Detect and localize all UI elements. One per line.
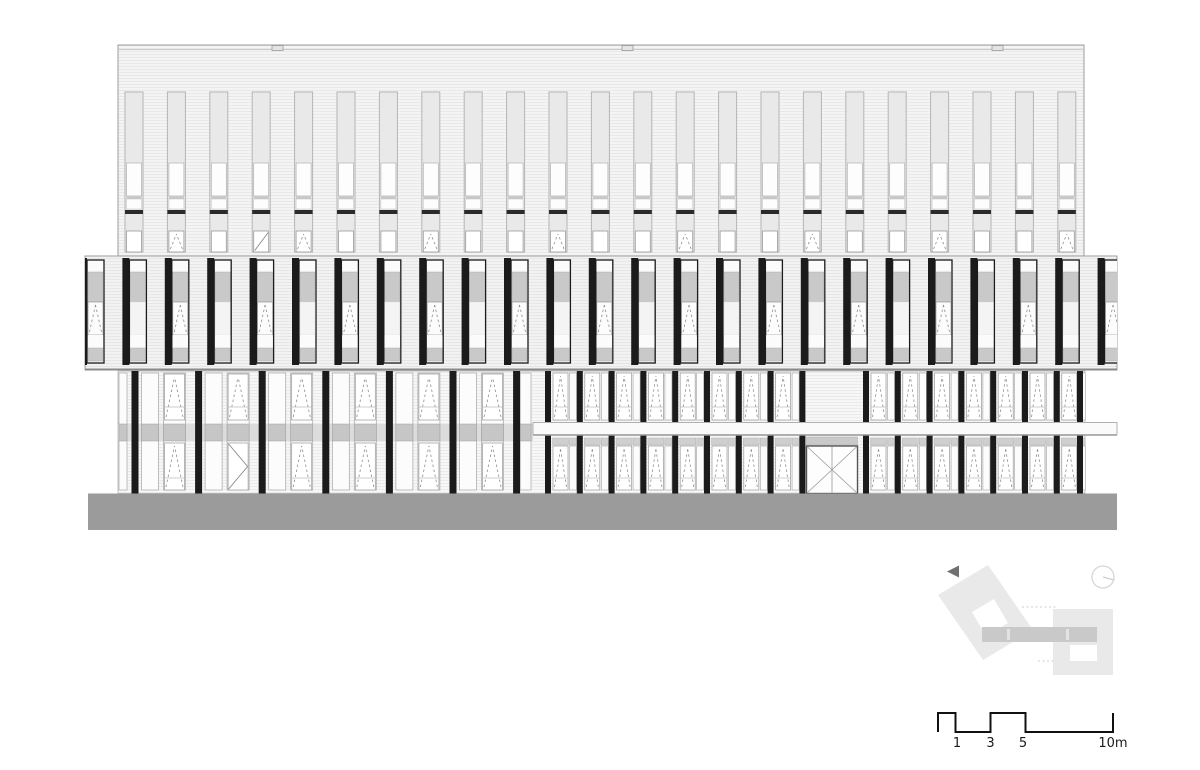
window-pane: [998, 373, 1013, 420]
floor-slab-line: [634, 210, 652, 214]
spandrel: [766, 272, 781, 302]
window-pane: [483, 443, 503, 490]
window-recess: [763, 214, 778, 231]
sill-panel: [766, 348, 781, 361]
floor-slab-line: [931, 210, 949, 214]
window-pane: [724, 261, 739, 272]
window-pane: [553, 373, 568, 420]
upper-window-strip: [422, 92, 440, 252]
window-pane: [385, 261, 400, 272]
mullion: [322, 371, 329, 494]
transom-panel: [998, 438, 1014, 445]
window-pane: [936, 261, 951, 272]
window-pane: [512, 261, 527, 272]
spandrel: [164, 424, 186, 441]
window-pane: [744, 446, 759, 490]
window-pane: [935, 446, 950, 490]
floor-slab-line: [761, 210, 779, 214]
upper-window-strip: [167, 92, 185, 252]
window-pane: [851, 335, 866, 348]
upper-window-strip: [210, 92, 228, 252]
window-pane: [211, 163, 226, 196]
sill-panel: [809, 348, 824, 361]
spandrel: [1063, 272, 1078, 302]
band-window-unit: [758, 258, 782, 365]
spandrel-column: [951, 446, 958, 490]
window-pane: [847, 199, 862, 209]
band-window-unit: [674, 258, 698, 365]
window-pane: [553, 446, 568, 490]
transom-panel: [1015, 438, 1022, 445]
transom-panel: [902, 438, 918, 445]
window-pane: [847, 163, 862, 196]
window-pane: [551, 199, 566, 209]
transom-panel: [648, 438, 664, 445]
band-window-unit: [801, 258, 825, 365]
ground-strip: [88, 494, 1117, 531]
window-pane: [300, 261, 315, 272]
sill-panel: [385, 348, 400, 361]
spandrel: [119, 424, 127, 441]
sill-panel: [936, 348, 951, 361]
window-recess: [508, 214, 523, 231]
window-pane: [512, 335, 527, 348]
mullion: [250, 258, 257, 365]
spandrel-column: [951, 373, 958, 420]
transom-panel: [697, 438, 704, 445]
mullion: [758, 258, 765, 365]
spandrel: [763, 196, 778, 199]
mullion: [1055, 258, 1062, 365]
spandrel: [682, 272, 697, 302]
entrance-door: [807, 437, 858, 494]
sill-panel: [342, 348, 357, 361]
window-recess: [211, 214, 226, 231]
spandrel: [932, 196, 947, 199]
band-window-unit: [716, 258, 740, 365]
window-pane: [585, 373, 600, 420]
window-pane: [635, 199, 650, 209]
spandrel: [466, 196, 481, 199]
transom-panel: [553, 438, 569, 445]
spandrel-column: [1015, 446, 1022, 490]
window-pane: [1017, 199, 1032, 209]
spandrel: [339, 196, 354, 199]
mullion: [513, 371, 520, 494]
spandrel: [88, 272, 103, 302]
band-window-unit: [546, 258, 570, 365]
window-pane: [890, 231, 905, 252]
window-pane: [593, 231, 608, 252]
floor-slab-line: [803, 210, 821, 214]
mullion: [631, 258, 638, 365]
window-pane: [635, 231, 650, 252]
window-pane: [130, 261, 145, 272]
window-pane: [763, 199, 778, 209]
spandrel: [597, 272, 612, 302]
band-window-unit: [122, 258, 146, 365]
spandrel: [130, 272, 145, 302]
window-pane: [300, 335, 315, 348]
band-window-unit: [1098, 258, 1122, 365]
upper-window-strip: [295, 92, 313, 252]
upper-window-strip: [464, 92, 482, 252]
window-pane: [1030, 373, 1045, 420]
window-pane: [165, 443, 185, 490]
spandrel-column: [729, 373, 736, 420]
lower-level: [118, 371, 1117, 494]
window-pane: [173, 261, 188, 272]
spandrel: [258, 272, 273, 302]
window-pane: [508, 199, 523, 209]
window-pane: [932, 163, 947, 196]
window-pane: [470, 335, 485, 348]
window-recess: [296, 214, 311, 231]
window-pane: [1017, 163, 1032, 196]
window-pane: [597, 261, 612, 272]
window-pane: [551, 163, 566, 196]
window-pane: [809, 261, 824, 272]
window-pane: [300, 302, 315, 335]
transom-panel: [871, 438, 887, 445]
floor-slab-line: [337, 210, 355, 214]
window-pane: [254, 199, 269, 209]
mullion: [970, 258, 977, 365]
spandrel: [173, 272, 188, 302]
transom-panel: [616, 438, 632, 445]
ground-line: [88, 494, 1117, 531]
window-pane: [978, 302, 993, 335]
sill-panel: [597, 348, 612, 361]
spandrel: [975, 196, 990, 199]
band-window-unit: [207, 258, 231, 365]
window-pane: [466, 199, 481, 209]
spandrel-column: [760, 373, 767, 420]
floor-slab-line: [591, 210, 609, 214]
mullion: [928, 258, 935, 365]
window-recess: [635, 214, 650, 231]
spandrel: [635, 196, 650, 199]
window-pane: [427, 261, 442, 272]
spandrel-column: [729, 446, 736, 490]
lower-window-column: [227, 373, 249, 490]
floor-slab-line: [676, 210, 694, 214]
window-recess: [466, 214, 481, 231]
window-pane: [1062, 373, 1077, 420]
spandrel: [291, 424, 313, 441]
floor-slab-line: [846, 210, 864, 214]
spandrel: [254, 196, 269, 199]
floor-slab-line: [125, 210, 143, 214]
spandrel: [205, 424, 222, 441]
spandrel-column: [1015, 373, 1022, 420]
window-pane: [385, 335, 400, 348]
window-pane: [339, 199, 354, 209]
upper-window-strip: [1015, 92, 1033, 252]
middle-band: [80, 256, 1122, 370]
window-pane: [720, 231, 735, 252]
window-pane: [1062, 446, 1077, 490]
window-pane: [903, 373, 918, 420]
window-pane: [215, 302, 230, 335]
window-pane: [355, 443, 375, 490]
window-recess: [254, 214, 269, 231]
window-pane: [339, 231, 354, 252]
transom-panel: [951, 438, 958, 445]
spandrel: [227, 424, 249, 441]
window-pane: [483, 374, 503, 420]
upper-window-strip: [379, 92, 397, 252]
spandrel-column: [665, 373, 672, 420]
sill-panel: [470, 348, 485, 361]
transom-panel: [983, 438, 990, 445]
spandrel: [423, 196, 438, 199]
window-pane: [851, 261, 866, 272]
sill-panel: [894, 348, 909, 361]
scale-bar-line: [938, 713, 1113, 732]
window-pane: [680, 373, 695, 420]
window-pane: [381, 231, 396, 252]
window-pane: [127, 231, 142, 252]
spandrel-column: [601, 446, 608, 490]
spandrel: [1021, 272, 1036, 302]
upper-window-strip: [591, 92, 609, 252]
window-pane: [470, 302, 485, 335]
floor-slab-line: [167, 210, 185, 214]
spandrel-column: [1047, 373, 1054, 420]
window-pane: [635, 163, 650, 196]
spandrel-column: [760, 446, 767, 490]
spandrel: [215, 272, 230, 302]
band-window-unit: [292, 258, 316, 365]
transom-panel: [712, 438, 728, 445]
mullion: [886, 258, 893, 365]
window-pane: [1059, 199, 1074, 209]
scale-bar: 13510m: [938, 713, 1128, 751]
window-recess: [381, 214, 396, 231]
spandrel: [554, 272, 569, 302]
window-pane: [470, 261, 485, 272]
upper-window-strip: [888, 92, 906, 252]
window-pane: [766, 261, 781, 272]
sill-panel: [851, 348, 866, 361]
window-pane: [508, 163, 523, 196]
canopy: [533, 423, 1117, 435]
spandrel-column: [633, 446, 640, 490]
lower-window-column: [354, 373, 376, 490]
window-pane: [966, 373, 981, 420]
upper-window-strip: [973, 92, 991, 252]
upper-window-strip: [125, 92, 143, 252]
upper-window-strip: [846, 92, 864, 252]
window-pane: [809, 302, 824, 335]
transom-panel: [888, 438, 895, 445]
spandrel: [142, 424, 159, 441]
band-window-unit: [462, 258, 486, 365]
sill-panel: [88, 348, 103, 361]
window-pane: [682, 261, 697, 272]
window-pane: [228, 374, 248, 420]
window-pane: [763, 163, 778, 196]
roof-vent: [272, 46, 283, 51]
transom-panel: [775, 438, 791, 445]
window-pane: [1106, 335, 1121, 348]
window-pane: [724, 335, 739, 348]
spandrel: [593, 196, 608, 199]
spandrel: [460, 424, 477, 441]
window-pane: [680, 446, 695, 490]
window-pane: [88, 335, 103, 348]
spandrel-column: [792, 446, 799, 490]
band-window-unit: [334, 258, 358, 365]
window-pane: [890, 199, 905, 209]
window-pane: [1017, 231, 1032, 252]
scale-label: 1: [953, 736, 961, 751]
band-window-unit: [165, 258, 189, 365]
floor-slab-line: [422, 210, 440, 214]
window-pane: [342, 261, 357, 272]
window-recess: [890, 214, 905, 231]
elevation-highlight-bar: [982, 627, 1097, 642]
upper-window-strip: [803, 92, 821, 252]
window-pane: [894, 261, 909, 272]
window-pane: [508, 231, 523, 252]
window-pane: [894, 302, 909, 335]
view-direction-arrow-icon: [947, 566, 959, 578]
mullion: [1098, 258, 1105, 365]
scale-label: 3: [986, 736, 994, 751]
mullion: [334, 258, 341, 365]
window-recess: [1017, 214, 1032, 231]
band-window-unit: [1055, 258, 1079, 365]
roof-vent: [622, 46, 633, 51]
window-pane: [776, 446, 791, 490]
mullion: [292, 258, 299, 365]
window-pane: [1063, 261, 1078, 272]
spandrel: [169, 196, 184, 199]
mullion: [80, 258, 87, 365]
window-pane: [258, 261, 273, 272]
sill-panel: [215, 348, 230, 361]
sill-panel: [1106, 348, 1121, 361]
spandrel: [639, 272, 654, 302]
sill-panel: [1021, 348, 1036, 361]
window-pane: [385, 302, 400, 335]
sill-panel: [639, 348, 654, 361]
spandrel: [894, 272, 909, 302]
spandrel-column: [919, 373, 926, 420]
upper-block: [118, 45, 1084, 258]
upper-window-strip: [676, 92, 694, 252]
spandrel-column: [983, 446, 990, 490]
sill-panel: [258, 348, 273, 361]
spandrel: [418, 424, 440, 441]
window-pane: [593, 163, 608, 196]
mullion: [546, 258, 553, 365]
spandrel: [1106, 272, 1121, 302]
floor-slab-line: [1015, 210, 1033, 214]
upper-window-strip: [634, 92, 652, 252]
window-recess: [720, 214, 735, 231]
window-pane: [597, 335, 612, 348]
window-pane: [890, 163, 905, 196]
window-pane: [639, 261, 654, 272]
spandrel: [512, 272, 527, 302]
window-pane: [678, 163, 693, 196]
window-pane: [296, 163, 311, 196]
transom-panel: [584, 438, 600, 445]
roof-vent: [992, 46, 1003, 51]
window-pane: [258, 335, 273, 348]
upper-window-strip: [252, 92, 270, 252]
spandrel: [847, 196, 862, 199]
window-pane: [1021, 261, 1036, 272]
spandrel-column: [570, 373, 577, 420]
spandrel-column: [633, 373, 640, 420]
sill-panel: [978, 348, 993, 361]
upper-window-strip: [931, 92, 949, 252]
window-pane: [419, 374, 439, 420]
spandrel-column: [983, 373, 990, 420]
transom-panel: [1061, 438, 1077, 445]
lower-window-column: [164, 373, 186, 490]
site-door-tick: [1066, 629, 1069, 640]
spandrel: [211, 196, 226, 199]
scale-label: 5: [1019, 736, 1027, 751]
transom-panel: [807, 437, 858, 445]
spandrel: [508, 196, 523, 199]
upper-window-strip: [549, 92, 567, 252]
window-pane: [720, 163, 735, 196]
band-window-unit: [80, 258, 104, 365]
spandrel-column: [570, 446, 577, 490]
spandrel-column: [601, 373, 608, 420]
window-pane: [1021, 335, 1036, 348]
window-recess: [593, 214, 608, 231]
band-window-unit: [970, 258, 994, 365]
transom-panel: [919, 438, 926, 445]
band-window-unit: [589, 258, 613, 365]
window-pane: [720, 199, 735, 209]
window-pane: [130, 335, 145, 348]
mullion: [419, 258, 426, 365]
upper-window-strip: [1058, 92, 1076, 252]
spandrel: [332, 424, 349, 441]
window-pane: [712, 446, 727, 490]
spandrel: [890, 196, 905, 199]
window-pane: [724, 302, 739, 335]
spandrel: [720, 196, 735, 199]
sill-panel: [724, 348, 739, 361]
window-pane: [554, 302, 569, 335]
mullion: [674, 258, 681, 365]
mullion: [207, 258, 214, 365]
window-recess: [127, 214, 142, 231]
sill-panel: [554, 348, 569, 361]
transom-panel: [743, 438, 759, 445]
window-recess: [339, 214, 354, 231]
window-recess: [975, 214, 990, 231]
floor-slab-line: [888, 210, 906, 214]
window-pane: [617, 446, 632, 490]
window-recess: [169, 214, 184, 231]
window-pane: [975, 163, 990, 196]
site-footprint-rotated-block: [938, 565, 1033, 660]
window-pane: [712, 373, 727, 420]
window-pane: [639, 335, 654, 348]
spandrel-column: [888, 373, 895, 420]
window-pane: [639, 302, 654, 335]
